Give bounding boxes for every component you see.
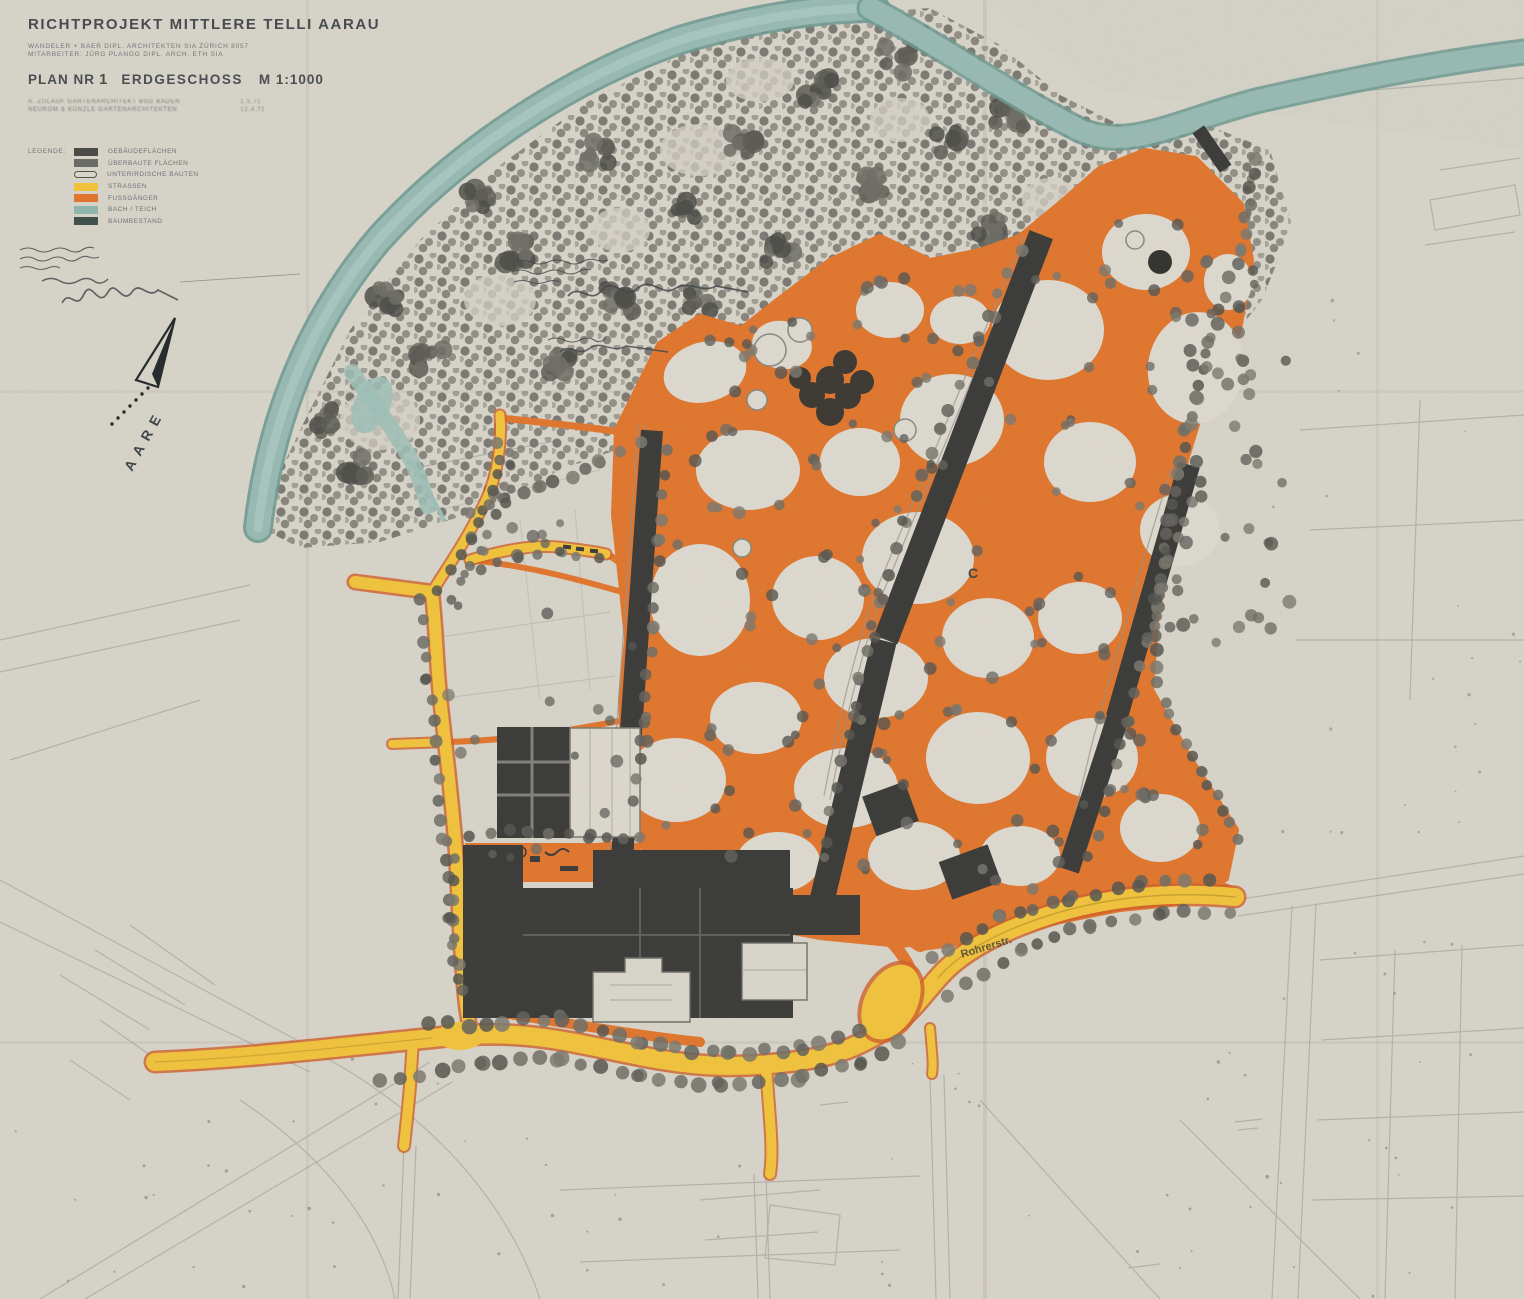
- legend-heading: LEGENDE:: [28, 148, 74, 155]
- plan-scale: M 1:1000: [259, 72, 324, 87]
- legend-label: ÜBERBAUTE FLÄCHEN: [108, 160, 188, 167]
- legend-row: UNTERIRDISCHE BAUTEN: [28, 169, 288, 181]
- plan-number-line: PLAN NR1ERDGESCHOSSM 1:1000: [28, 71, 458, 89]
- sub-line-2: NEUKOM & KÜNZLE GARTENARCHITEKTEN: [28, 107, 180, 115]
- solid-dark-disc: [1148, 250, 1172, 274]
- legend-label: STRASSEN: [108, 183, 147, 190]
- scanned-site-plan: AARE Rohrerstr. C RICHTPROJEKT MITTLERE …: [0, 0, 1524, 1299]
- plan-name: ERDGESCHOSS: [121, 72, 243, 87]
- legend-row: LEGENDE:GEBÄUDEFLÄCHEN: [28, 146, 288, 158]
- sub-line-1: A. ZULAUF GARTENARCHITEKT BSG BADEN: [28, 99, 180, 107]
- legend-label: FUSSGÄNGER: [108, 195, 159, 202]
- legend-swatch: [74, 159, 98, 167]
- architect-credits: WANDELER + BAER DIPL. ARCHITEKTEN SIA ZÜ…: [28, 43, 458, 59]
- legend-swatch: [74, 148, 98, 156]
- legend-swatch: [74, 217, 98, 225]
- date-note-1: 1.5.71: [240, 99, 265, 107]
- legend-label: GEBÄUDEFLÄCHEN: [108, 148, 177, 155]
- legend-row: FUSSGÄNGER: [28, 192, 288, 204]
- legend-label: BACH / TEICH: [108, 206, 157, 213]
- legend-swatch: [74, 171, 97, 178]
- legend-row: STRASSEN: [28, 181, 288, 193]
- marker-c: C: [968, 565, 978, 581]
- legend-row: BAUMBESTAND: [28, 216, 288, 228]
- legend-row: BACH / TEICH: [28, 204, 288, 216]
- legend-label: BAUMBESTAND: [108, 218, 163, 225]
- plan-nr-label: PLAN NR: [28, 72, 95, 87]
- legend-swatch: [74, 206, 98, 214]
- legend-swatch: [74, 183, 98, 191]
- legend-row: ÜBERBAUTE FLÄCHEN: [28, 158, 288, 170]
- title-block: RICHTPROJEKT MITTLERE TELLI AARAU WANDEL…: [28, 16, 458, 114]
- legend-swatch: [74, 194, 98, 202]
- landscape-credits: A. ZULAUF GARTENARCHITEKT BSG BADEN NEUK…: [28, 99, 458, 114]
- credit-line-1: WANDELER + BAER DIPL. ARCHITEKTEN SIA ZÜ…: [28, 43, 458, 51]
- legend: LEGENDE:GEBÄUDEFLÄCHENÜBERBAUTE FLÄCHENU…: [28, 146, 288, 227]
- date-note-2: 12.4.71: [240, 107, 265, 115]
- plan-title: RICHTPROJEKT MITTLERE TELLI AARAU: [28, 16, 458, 33]
- legend-label: UNTERIRDISCHE BAUTEN: [107, 171, 199, 178]
- credit-line-2: MITARBEITER: JÜRG PLANGG DIPL. ARCH. ETH…: [28, 51, 458, 59]
- plan-number: 1: [99, 71, 107, 88]
